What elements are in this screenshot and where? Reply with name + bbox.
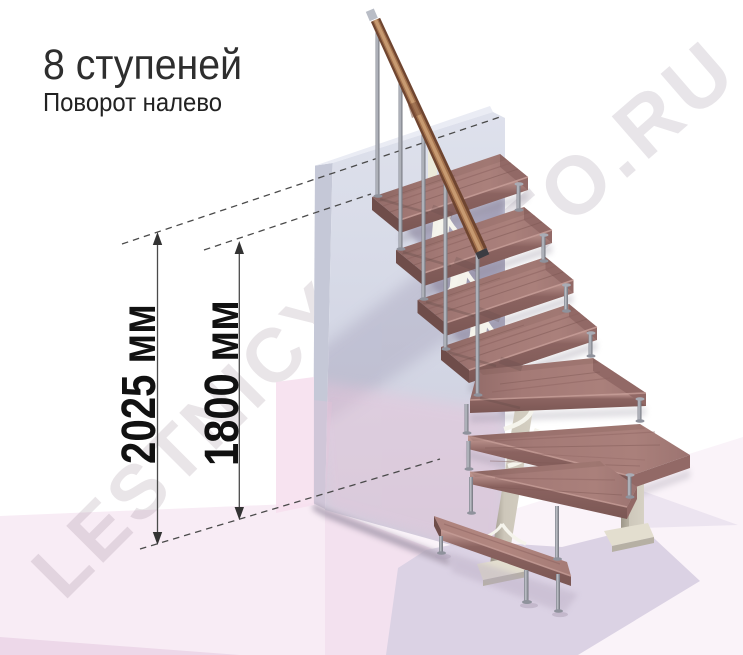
svg-text:8 ступеней: 8 ступеней: [43, 41, 242, 89]
svg-text:1800 мм: 1800 мм: [196, 300, 249, 466]
svg-text:Поворот налево: Поворот налево: [43, 87, 222, 117]
svg-text:2025 мм: 2025 мм: [113, 304, 166, 464]
